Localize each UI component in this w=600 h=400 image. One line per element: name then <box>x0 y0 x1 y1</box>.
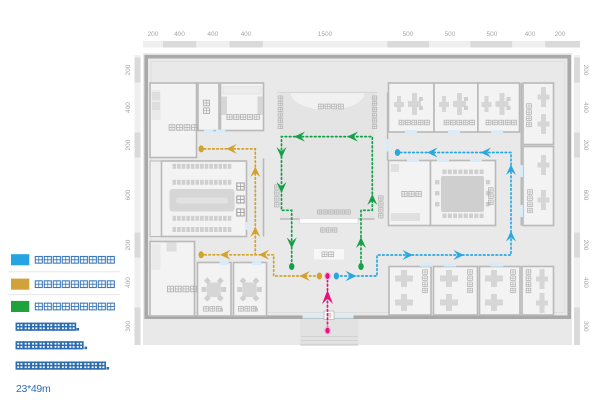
svg-text:400: 400 <box>125 102 132 113</box>
svg-text:600: 600 <box>582 190 589 201</box>
svg-text:500: 500 <box>487 31 498 38</box>
svg-text:500: 500 <box>445 31 456 38</box>
svg-text:a: a <box>220 307 224 314</box>
svg-text:b: b <box>255 307 259 314</box>
svg-text:600: 600 <box>125 189 132 200</box>
svg-text:300: 300 <box>125 320 132 331</box>
svg-text:200: 200 <box>125 239 132 250</box>
svg-text:200: 200 <box>148 31 159 38</box>
svg-text:400: 400 <box>241 31 252 38</box>
svg-text:1500: 1500 <box>318 31 333 38</box>
svg-text:200: 200 <box>555 31 566 38</box>
svg-text:200: 200 <box>125 64 132 75</box>
svg-text:400: 400 <box>525 31 536 38</box>
svg-text:300: 300 <box>582 321 589 332</box>
svg-text:200: 200 <box>582 65 589 76</box>
svg-text:200: 200 <box>582 240 589 251</box>
svg-text:400: 400 <box>125 277 132 288</box>
svg-text:200: 200 <box>582 140 589 151</box>
svg-text:400: 400 <box>582 102 589 113</box>
svg-text:400: 400 <box>174 31 185 38</box>
svg-text:400: 400 <box>207 31 218 38</box>
svg-text:500: 500 <box>403 31 414 38</box>
svg-text:23*49m: 23*49m <box>16 383 51 395</box>
svg-text:400: 400 <box>582 277 589 288</box>
svg-text:200: 200 <box>125 139 132 150</box>
